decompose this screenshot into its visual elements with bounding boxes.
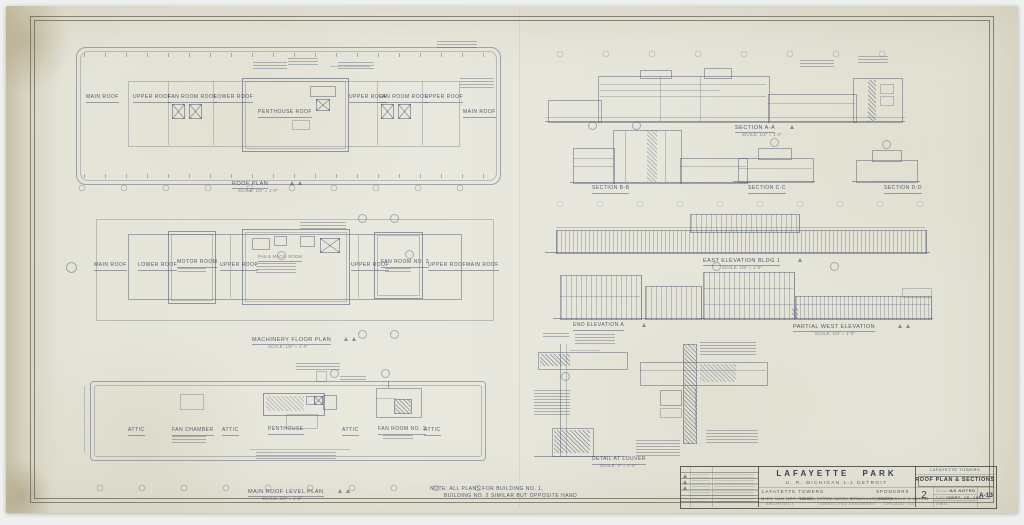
detail-box (660, 390, 682, 406)
equipment-box (274, 236, 287, 246)
west-elevation-band (795, 296, 932, 320)
room-label: MAIN ROOF (94, 263, 127, 271)
project-title: LAFAYETTE PARK (758, 469, 915, 478)
annotation-text (858, 56, 888, 64)
section-line (700, 76, 701, 121)
end-elevation-block (645, 286, 702, 320)
grid-bubble (882, 140, 891, 149)
roof-equipment (316, 99, 330, 111)
room-label: PENTHOUSE (268, 427, 304, 435)
annotation-text (288, 58, 318, 65)
equipment-box (180, 394, 204, 410)
dimension-line (84, 386, 85, 452)
roof-vent (316, 371, 327, 382)
ground-line (852, 181, 920, 182)
ground-line (545, 252, 930, 253)
section-line (573, 166, 613, 167)
room-label: MAIN ROOF (86, 95, 119, 103)
general-note-line2: BUILDING NO. 2 SIMILAR BUT OPPOSITE HAND (444, 494, 577, 500)
section-line (660, 76, 661, 121)
annotation-text (300, 222, 346, 229)
detail-mark (290, 181, 294, 185)
detail-mark (346, 489, 350, 493)
roof-bay-line (377, 81, 378, 145)
detail-mark (898, 324, 902, 328)
sheet-title: ROOF PLAN & SECTIONS (915, 477, 995, 483)
room-label: MOTOR ROOM (177, 260, 217, 268)
annotation-text (172, 436, 206, 443)
room-label: PENTHOUSE ROOF (258, 110, 312, 118)
roof-bay-line (422, 81, 423, 145)
east-elevation-band (556, 230, 927, 254)
building-number: 2 (915, 490, 933, 501)
ground-line (553, 318, 705, 319)
leader-line (695, 388, 696, 428)
section-d-label: SECTION D-D (884, 186, 922, 194)
elevation-line (795, 304, 930, 305)
roof-bay-line (168, 81, 169, 145)
detail-mark (344, 337, 348, 341)
detail-mark (352, 337, 356, 341)
ground-line (733, 181, 815, 182)
section-mass (548, 100, 602, 123)
section-mass (853, 78, 903, 123)
end-elevation-block (560, 275, 642, 320)
room-label: UPPER ROOF (133, 95, 171, 103)
shaft-box (398, 104, 411, 119)
grid-bubble (358, 330, 367, 339)
roof-plan-scale: SCALE: 1/8" = 1'-0" (238, 189, 278, 194)
annotation-text (256, 263, 296, 273)
drawing-label: DWG. (936, 502, 949, 507)
detail-hatch (554, 430, 590, 453)
section-line (665, 130, 666, 182)
room-label: LOWER ROOF (214, 95, 253, 103)
section-a-scale: SCALE: 1/4" = 1'-0" (742, 133, 782, 138)
section-detail (880, 96, 894, 106)
detail-mark (338, 489, 342, 493)
detail-mark (798, 258, 802, 262)
equipment-box (323, 395, 337, 410)
annotation-text (340, 376, 366, 382)
main-roof-plan-scale: SCALE: 1/8" = 1'-0" (262, 497, 302, 502)
elevation-line (703, 304, 793, 305)
section-c-label: SECTION C-C (748, 186, 786, 194)
machinery-plan-scale: SCALE: 1/8" = 1'-0" (268, 345, 308, 350)
annotation-text (700, 342, 756, 356)
roof-equipment (292, 120, 310, 130)
roof-plan-column-ticks (84, 53, 491, 57)
sheet-number: A-13 (977, 492, 995, 499)
sponsor-location: CHICAGO, ILL. (884, 502, 917, 506)
room-label: FAN CHAMBER (172, 428, 214, 436)
fan-symbol (277, 251, 286, 260)
shaft-box (172, 104, 185, 119)
room-label: FAN ROOM ROOF (379, 95, 428, 103)
annotation-text (178, 268, 206, 273)
room-label: MAIN ROOF (463, 110, 496, 118)
detail-mark (298, 181, 302, 185)
east-elevation-penthouse (690, 214, 800, 233)
fan-room-hatch (394, 399, 412, 414)
west-elevation-scale: SCALE: 1/8" = 1'-0" (815, 332, 855, 337)
west-elevation-cap (902, 288, 932, 298)
annotation-text (383, 435, 413, 441)
engineers-role: CONSULTING ENGINEERS (818, 502, 875, 506)
annotation-text (296, 363, 340, 372)
penthouse-hatch (266, 396, 304, 411)
building-name: LAFAYETTE TOWERS (762, 489, 824, 494)
section-mass (856, 160, 918, 183)
section-hatch (647, 130, 657, 182)
elevation-line (560, 296, 640, 297)
east-elevation-scale: SCALE: 1/8" = 1'-0" (722, 266, 762, 271)
room-label: FAN ROOM ROOF (168, 95, 217, 103)
revision-mark (683, 474, 687, 478)
shaft-box (381, 104, 394, 119)
detail-mark (906, 324, 910, 328)
annotation-text (543, 333, 569, 339)
section-line (738, 168, 812, 169)
section-b-label: SECTION B-B (592, 186, 629, 194)
detail-mark (642, 323, 646, 327)
shaft-box (189, 104, 202, 119)
revision-mark (683, 480, 687, 484)
elevation-hatch (792, 308, 798, 318)
detail-mark (790, 125, 794, 129)
end-elevation-label: END ELEVATION A (573, 323, 624, 331)
section-line (768, 103, 855, 104)
revision-dates (692, 474, 710, 502)
match-mark (66, 262, 77, 273)
roof-bay-line (213, 81, 214, 145)
detail-bubble (830, 262, 839, 271)
room-label: FAN ROOM NO. 2 (378, 427, 426, 435)
grid-bubbles (556, 50, 908, 58)
title-block-rule (758, 487, 915, 488)
leader-line (570, 350, 600, 351)
elevation-line (703, 288, 793, 289)
info-divider (933, 487, 934, 507)
annotation-text (534, 390, 570, 416)
grid-bubble (390, 330, 399, 339)
grid-bubbles (556, 200, 926, 208)
sponsors-label: SPONSORS (876, 489, 910, 494)
grid-bubbles (78, 184, 498, 192)
section-mass (872, 150, 902, 162)
section-detail (880, 84, 894, 94)
dimension-text (256, 452, 336, 460)
annotation-text (460, 78, 494, 88)
annotation-text (575, 334, 615, 344)
section-mass (768, 94, 857, 123)
room-label: FAN ROOM NO. 2 (381, 260, 429, 268)
equipment-box (320, 238, 340, 253)
equipment-box (252, 238, 270, 250)
annotation-text (385, 268, 411, 273)
wall-line (376, 398, 396, 399)
scanned-blueprint-sheet: MAIN ROOF UPPER ROOF FAN ROOM ROOF LOWER… (0, 0, 1024, 525)
series-label: LAFAYETTE TOWERS (916, 468, 994, 473)
room-label: MAIN ROOF (466, 263, 499, 271)
leader-line (330, 66, 370, 67)
west-elevation-block (703, 272, 795, 320)
grid-bubble (381, 369, 390, 378)
penthouse-mass (640, 70, 672, 79)
ground-line (700, 318, 933, 319)
room-label: ATTIC (128, 428, 145, 436)
wall-line (388, 381, 389, 388)
grid-bubble (588, 121, 597, 130)
detail-hatch (700, 364, 736, 382)
grid-bubble (770, 138, 779, 147)
grid-bubble (390, 214, 399, 223)
room-label: ATTIC (342, 428, 359, 436)
detail-hatch (540, 354, 570, 366)
ground-line (570, 182, 750, 183)
room-label: ATTIC (222, 428, 239, 436)
revision-mark (683, 486, 687, 490)
general-note-line1: NOTE: ALL PLANS FOR BUILDING NO. 1, (430, 487, 543, 493)
dimension-line (250, 449, 350, 450)
annotation-text (706, 430, 758, 444)
section-line (600, 96, 766, 97)
revision-descriptions (714, 474, 754, 502)
detail-box (660, 408, 682, 418)
room-label: UPPER ROOF (428, 263, 466, 271)
section-mass (758, 148, 792, 160)
detail-scale: SCALE: 3" = 1'-0" (600, 464, 636, 469)
annotation-text (437, 41, 477, 49)
info-rule (915, 474, 995, 475)
section-line (573, 158, 613, 159)
section-line (680, 166, 746, 167)
roof-plan-column-ticks (84, 174, 491, 178)
room-label: UPPER ROOF (220, 263, 258, 271)
annotation-text (800, 60, 834, 68)
section-line (625, 130, 626, 182)
room-label: LOWER ROOF (138, 263, 177, 271)
room-label: UPPER ROOF (425, 95, 463, 103)
project-subtitle: U. R. MICHIGAN 1-1 DETROIT (758, 480, 915, 485)
penthouse-mass (704, 68, 732, 79)
section-mass (738, 158, 814, 183)
section-hatch (868, 80, 876, 121)
room-label: ATTIC (424, 428, 441, 436)
equipment-box (300, 236, 315, 247)
section-line (600, 84, 766, 85)
grid-bubble (632, 121, 641, 130)
grid-bubble (358, 214, 367, 223)
architect-role: ARCHITECT (766, 502, 794, 507)
roof-equipment (310, 86, 336, 97)
annotation-text (253, 62, 287, 71)
equipment-box (314, 396, 323, 405)
fan-symbol (405, 250, 414, 259)
detail-bubble (561, 372, 570, 381)
